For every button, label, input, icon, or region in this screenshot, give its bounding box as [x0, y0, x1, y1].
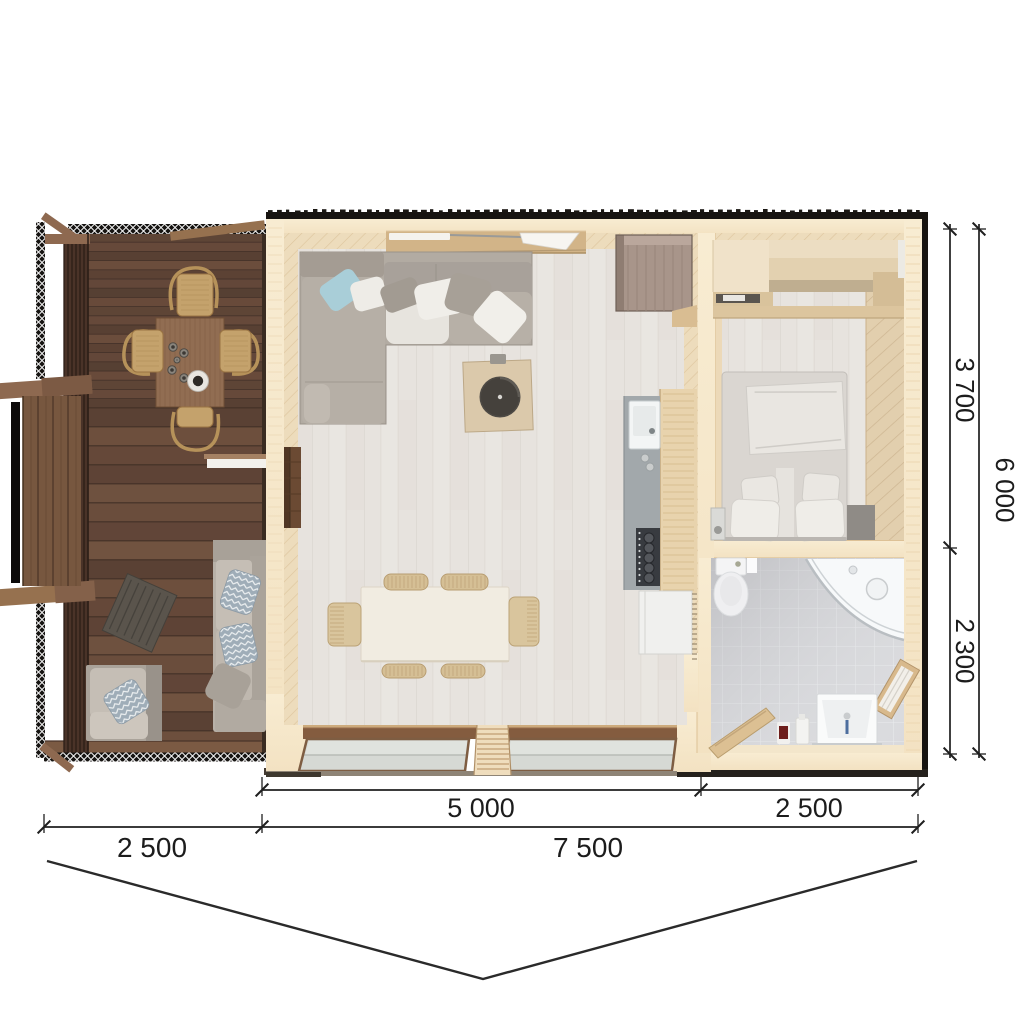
svg-text:6 000: 6 000 [990, 457, 1020, 522]
svg-text:2 300: 2 300 [950, 618, 980, 683]
svg-text:3 700: 3 700 [950, 357, 980, 422]
svg-text:5 000: 5 000 [447, 793, 515, 823]
svg-text:2 500: 2 500 [775, 793, 843, 823]
svg-text:7 500: 7 500 [553, 832, 623, 863]
svg-text:2 500: 2 500 [117, 832, 187, 863]
